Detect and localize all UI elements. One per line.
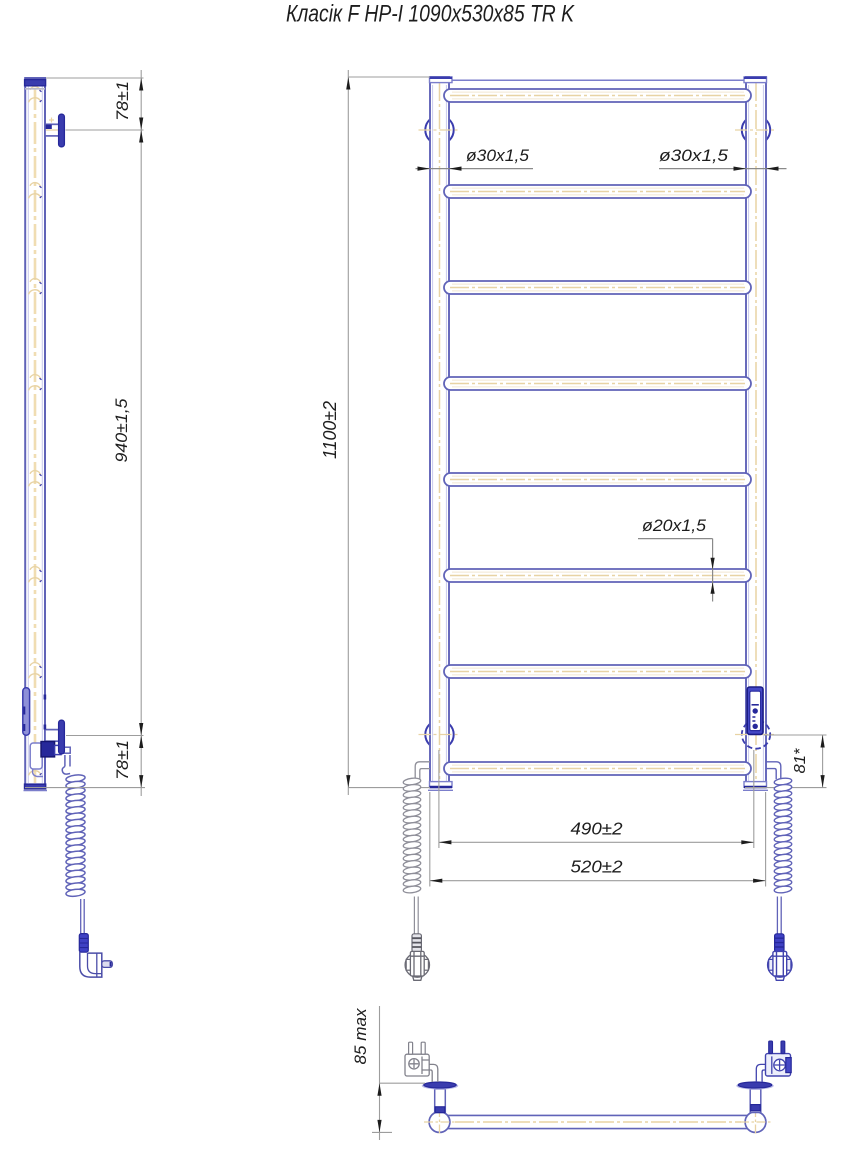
- svg-text:81*: 81*: [792, 748, 809, 774]
- svg-text:ø30х1,5: ø30х1,5: [659, 146, 729, 165]
- svg-text:Класік F HP-І 1090х530х85 TR K: Класік F HP-І 1090х530х85 TR K: [286, 1, 575, 28]
- svg-text:78±1: 78±1: [114, 81, 132, 121]
- svg-text:78±1: 78±1: [114, 740, 132, 780]
- svg-text:1100±2: 1100±2: [320, 401, 340, 459]
- svg-text:ø20х1,5: ø20х1,5: [642, 516, 707, 535]
- svg-text:85 mах: 85 mах: [352, 1008, 370, 1065]
- svg-text:490±2: 490±2: [571, 819, 623, 839]
- svg-text:520±2: 520±2: [571, 857, 623, 877]
- svg-text:940±1,5: 940±1,5: [113, 398, 131, 463]
- svg-text:ø30х1,5: ø30х1,5: [466, 146, 530, 165]
